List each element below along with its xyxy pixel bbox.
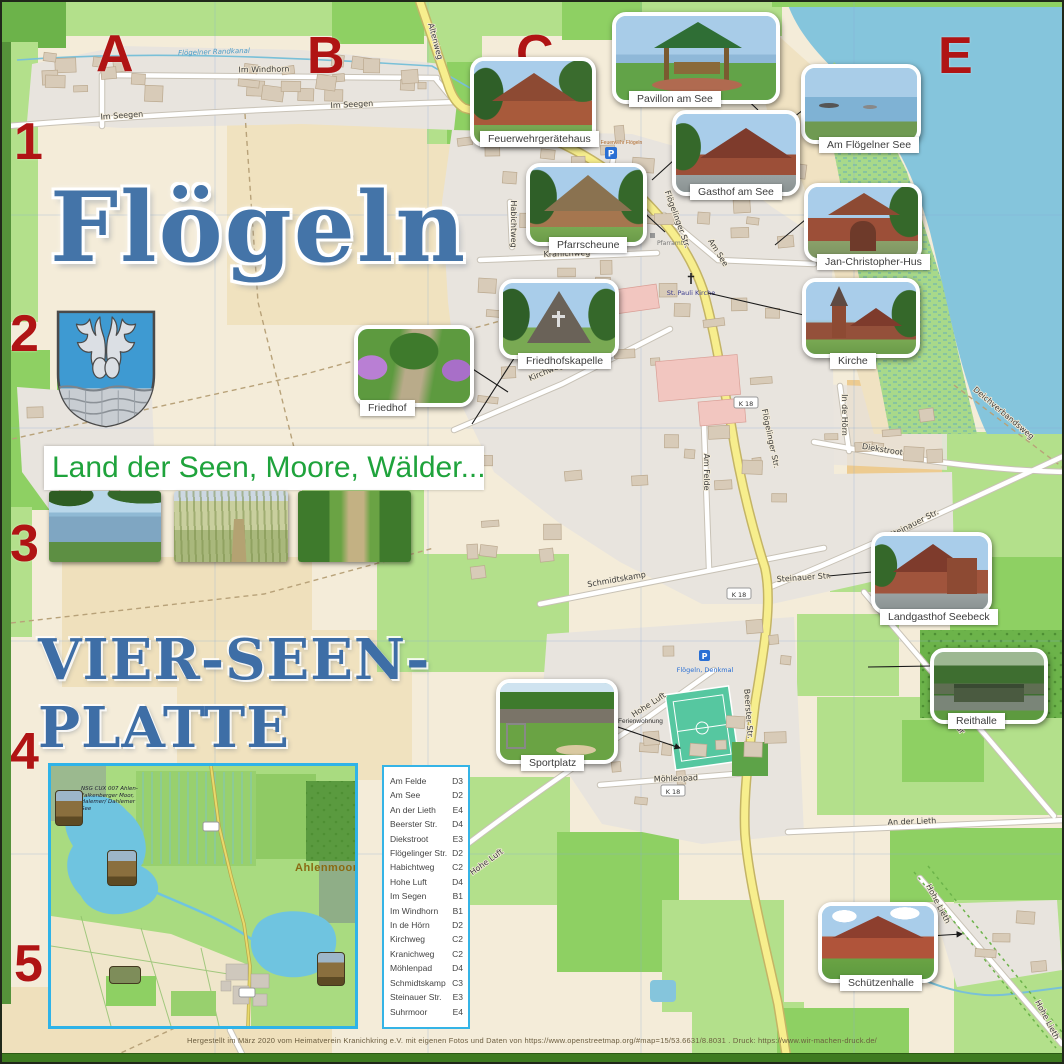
pfarramt-icon bbox=[650, 233, 655, 238]
building bbox=[564, 470, 582, 481]
label-floegelner-see: Am Flögelner See bbox=[819, 137, 919, 153]
svg-text:In de Hörn: In de Hörn bbox=[840, 394, 849, 436]
credit-line: Hergestellt im März 2020 vom Heimatverei… bbox=[2, 1036, 1062, 1045]
inset-nsg-label: NSG CUX 007 Ahlen-Falkenberger Moor, Hal… bbox=[81, 786, 147, 812]
village-title: Flögeln bbox=[50, 180, 467, 276]
grid-row-1: 1 bbox=[14, 112, 43, 172]
building bbox=[55, 58, 76, 73]
building bbox=[363, 59, 379, 73]
label-friedhof: Friedhof bbox=[360, 400, 415, 416]
building bbox=[764, 732, 786, 744]
building bbox=[614, 125, 625, 141]
building bbox=[697, 212, 710, 224]
coat-of-arms bbox=[55, 308, 157, 430]
building bbox=[467, 544, 478, 559]
building bbox=[746, 619, 763, 634]
building bbox=[470, 565, 486, 579]
grid-row-4: 4 bbox=[10, 722, 39, 782]
building bbox=[418, 82, 426, 89]
label-schuetzenhalle: Schützenhalle bbox=[840, 975, 922, 991]
photo-friedhof bbox=[354, 325, 474, 407]
svg-text:Im Windhorn: Im Windhorn bbox=[238, 65, 289, 75]
building bbox=[281, 81, 301, 92]
slogan-line1: VIER-SEEN- bbox=[38, 632, 430, 688]
building bbox=[401, 69, 418, 84]
label-feuerwehr: Feuerwehrgerätehaus bbox=[480, 131, 599, 147]
building bbox=[746, 217, 759, 225]
inset-photo-nature bbox=[109, 966, 141, 984]
building bbox=[714, 480, 732, 490]
building bbox=[479, 545, 497, 558]
svg-text:An der Lieth: An der Lieth bbox=[887, 816, 936, 827]
inset-photo-tower2 bbox=[317, 952, 345, 986]
building bbox=[993, 933, 1010, 942]
building bbox=[742, 460, 763, 474]
building bbox=[825, 434, 838, 440]
building bbox=[744, 742, 763, 757]
photo-kirche bbox=[802, 278, 920, 358]
building bbox=[45, 75, 65, 88]
building bbox=[768, 635, 778, 645]
slogan-band-text: Land der Seen, Moore, Wälder... bbox=[52, 451, 486, 485]
building bbox=[772, 494, 787, 502]
svg-text:Möhlenpad: Möhlenpad bbox=[654, 773, 698, 784]
photo-landgasthof-seebeck bbox=[871, 532, 992, 614]
building bbox=[73, 85, 87, 92]
building bbox=[654, 214, 674, 225]
inset-photo-tower bbox=[55, 790, 83, 826]
building bbox=[674, 303, 690, 317]
soccer-pitch bbox=[665, 686, 739, 770]
inset-map: Ahlenmoor NSG CUX 007 Ahlen-Falkenberger… bbox=[48, 763, 358, 1029]
strip-photo-moor bbox=[174, 491, 288, 562]
denkmal-label: Flögeln, Denkmal bbox=[677, 666, 734, 674]
building bbox=[689, 743, 706, 756]
building bbox=[478, 278, 497, 293]
building bbox=[765, 308, 779, 318]
grid-row-5: 5 bbox=[14, 934, 43, 994]
svg-text:Habichtweg: Habichtweg bbox=[509, 200, 518, 247]
building bbox=[780, 655, 791, 665]
church-label: St. Pauli Kirche bbox=[667, 289, 716, 297]
label-pfarrscheune: Pfarrscheune bbox=[549, 237, 627, 253]
label-jan-christopher-hus: Jan-Christopher-Hus bbox=[817, 254, 930, 270]
building bbox=[684, 449, 695, 459]
label-sportplatz: Sportplatz bbox=[521, 755, 584, 771]
grid-col-b: B bbox=[307, 26, 345, 86]
frame-bottom bbox=[2, 1053, 1062, 1064]
building bbox=[539, 548, 554, 562]
building bbox=[631, 475, 648, 486]
building bbox=[634, 797, 647, 805]
photo-pfarrscheune bbox=[526, 163, 647, 246]
building bbox=[544, 524, 562, 540]
building bbox=[663, 646, 674, 656]
photo-floegelner-see bbox=[801, 64, 921, 144]
strip-photo-lake bbox=[49, 491, 161, 562]
building bbox=[558, 268, 576, 277]
photo-sportplatz bbox=[496, 679, 618, 764]
svg-text:P: P bbox=[608, 150, 615, 160]
svg-text:Am Felde: Am Felde bbox=[702, 453, 711, 490]
inset-ahlenmoor-label: Ahlenmoor bbox=[295, 862, 358, 874]
strip-photo-forest bbox=[298, 491, 411, 562]
grid-row-2: 2 bbox=[10, 304, 39, 364]
building bbox=[664, 435, 678, 448]
photo-friedhofskapelle bbox=[499, 279, 619, 359]
building bbox=[903, 446, 924, 461]
building bbox=[708, 425, 730, 439]
building bbox=[975, 949, 996, 958]
inset-photo-hide bbox=[107, 850, 137, 886]
building bbox=[726, 716, 745, 729]
parking-icon: P bbox=[605, 147, 617, 160]
label-friedhofskapelle: Friedhofskapelle bbox=[518, 353, 611, 369]
svg-text:K 18: K 18 bbox=[666, 788, 681, 796]
building bbox=[882, 429, 901, 437]
building bbox=[144, 85, 163, 102]
parking-icon: P bbox=[699, 650, 710, 661]
building bbox=[261, 85, 284, 102]
svg-text:P: P bbox=[702, 652, 708, 661]
svg-text:K 18: K 18 bbox=[732, 591, 747, 599]
label-landgasthof-seebeck: Landgasthof Seebeck bbox=[880, 609, 998, 625]
building bbox=[733, 199, 751, 213]
slogan-band: Land der Seen, Moore, Wälder... bbox=[44, 446, 484, 490]
village-map-poster: Im Windhorn Im Seegen Im Seegen Altenweg… bbox=[0, 0, 1064, 1064]
frame-left bbox=[2, 42, 11, 1004]
grid-col-e: E bbox=[938, 26, 973, 86]
building bbox=[27, 407, 43, 418]
building bbox=[731, 227, 749, 237]
label-reithalle: Reithalle bbox=[948, 713, 1005, 729]
label-kirche: Kirche bbox=[830, 353, 876, 369]
building bbox=[1016, 911, 1035, 925]
building bbox=[481, 520, 499, 528]
building bbox=[600, 260, 612, 274]
building bbox=[611, 761, 621, 772]
photo-jan-christopher-hus bbox=[804, 183, 922, 262]
grid-row-3: 3 bbox=[10, 514, 39, 574]
building bbox=[919, 408, 935, 422]
pfarramt-label: Pfarramt bbox=[657, 240, 684, 247]
label-pavillon: Pavillon am See bbox=[629, 91, 721, 107]
building bbox=[540, 149, 555, 160]
building bbox=[501, 366, 516, 378]
slogan-line2: PLATTE bbox=[38, 700, 290, 756]
building bbox=[43, 52, 56, 62]
label-gasthof: Gasthof am See bbox=[690, 184, 782, 200]
building bbox=[750, 376, 772, 384]
svg-text:K 18: K 18 bbox=[739, 400, 754, 408]
building bbox=[1031, 960, 1047, 972]
photo-schuetzenhalle bbox=[818, 902, 938, 983]
building bbox=[927, 449, 943, 463]
ferienwohnung-label: Ferienwohnung bbox=[618, 718, 663, 725]
grid-col-a: A bbox=[96, 24, 134, 84]
street-index: Am FeldeD3 Am SeeD2 An der LiethE4 Beers… bbox=[382, 765, 470, 1029]
building bbox=[502, 171, 517, 184]
building bbox=[715, 740, 726, 750]
